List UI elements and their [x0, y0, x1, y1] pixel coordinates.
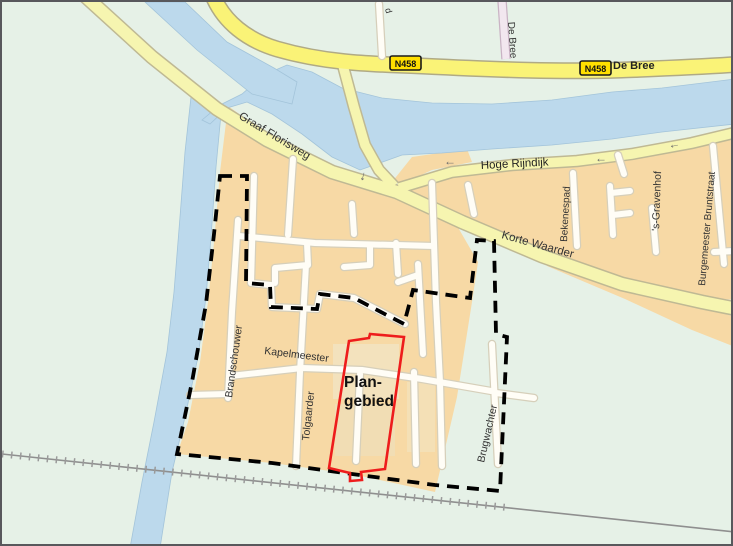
map-canvas: ← ← ← ↓ N458 N458 Graaf Florisweg Hoge R…: [2, 2, 731, 544]
left-arrow-icon: ←: [595, 151, 607, 165]
n458-badge: N458: [390, 56, 421, 70]
left-arrow-icon: ←: [444, 154, 456, 168]
n458-badge-text: N458: [395, 59, 417, 69]
lane-bekenespad: [573, 173, 577, 246]
plan-area-label-line1: Plan-: [344, 374, 382, 391]
plan-area-label-line2: gebied: [344, 393, 394, 410]
map-figure: ← ← ← ↓ N458 N458 Graaf Florisweg Hoge R…: [0, 0, 733, 546]
n458-badge-text: N458: [585, 64, 607, 74]
parcel-shade-2: [335, 404, 395, 456]
n458-badge: N458: [580, 61, 611, 75]
street-label-s-gravenhof: 's-Gravenhof: [650, 171, 664, 231]
street-label-de-bree: De Bree: [613, 60, 655, 72]
road-de-bree: [502, 2, 506, 59]
